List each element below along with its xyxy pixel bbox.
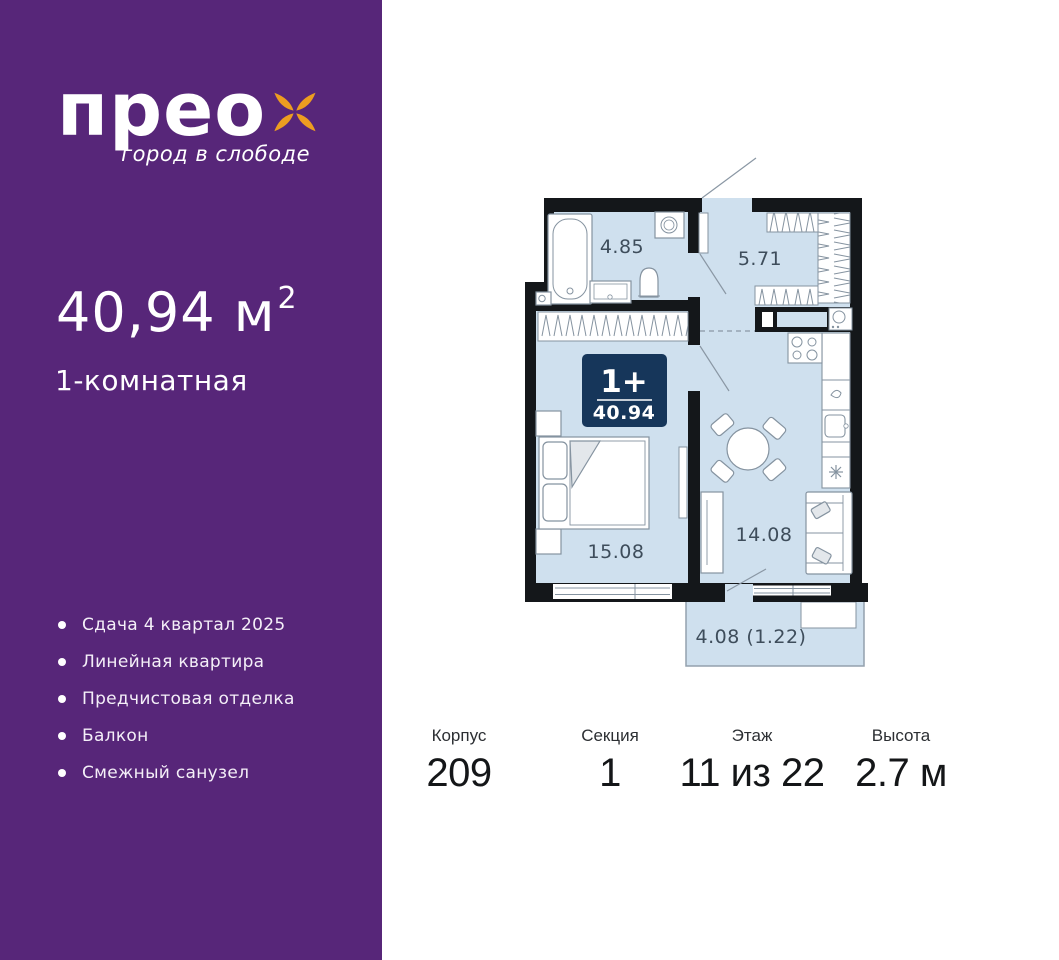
bullet-icon <box>58 695 66 703</box>
nightstand <box>536 529 561 554</box>
balcony-window <box>753 586 831 596</box>
bullet-icon <box>58 769 66 777</box>
bullet-icon <box>58 732 66 740</box>
bathroom-area-label: 4.85 <box>600 236 644 258</box>
feature-item: Балкон <box>58 727 295 744</box>
entrance-door-swing <box>702 158 756 198</box>
balcony-door-opening <box>725 584 753 602</box>
pillow <box>543 442 567 479</box>
toilet <box>640 268 658 297</box>
kitchen-sink <box>825 415 845 437</box>
fridge-snowflake-icon <box>829 465 843 479</box>
brand-flower-icon <box>273 80 317 144</box>
badge-rooms: 1+ <box>600 364 648 400</box>
balcony-area-label: 4.08 (1.22) <box>696 626 807 648</box>
sidebar: прео город в слободе 40,94 м2 1-комнатна… <box>0 0 382 960</box>
sofa <box>806 492 852 574</box>
bullet-icon <box>58 621 66 629</box>
tv-console <box>701 492 723 573</box>
feature-item: Смежный санузел <box>58 764 295 781</box>
dining-table <box>727 428 769 470</box>
kitchen-area-label: 14.08 <box>736 524 793 546</box>
bullet-icon <box>58 658 66 666</box>
pillow <box>543 484 567 521</box>
nightstand <box>536 411 561 436</box>
feature-list: Сдача 4 квартал 2025 Линейная квартира П… <box>58 616 295 801</box>
bedroom-console <box>679 447 687 518</box>
apartment-area: 40,94 м2 <box>56 281 296 344</box>
area-value: 40,94 <box>56 281 216 344</box>
bedroom-window <box>553 584 672 599</box>
detail-floor: Этаж 11 из 22 <box>680 726 825 796</box>
brand-name: прео <box>57 74 266 146</box>
area-unit: м <box>234 281 276 344</box>
stove <box>788 333 822 363</box>
feature-item: Линейная квартира <box>58 653 295 670</box>
apartment-badge: 1+ 40.94 <box>582 354 667 427</box>
floor-plan: 4.85 5.71 15.08 14.08 4.08 (1.22) 1+ 40.… <box>515 150 880 675</box>
hallway-area-label: 5.71 <box>738 248 782 270</box>
feature-item: Сдача 4 квартал 2025 <box>58 616 295 633</box>
apartment-card: прео город в слободе 40,94 м2 1-комнатна… <box>0 0 1059 960</box>
detail-section: Секция 1 <box>581 726 639 796</box>
entrance-door-leaf <box>699 213 708 253</box>
area-sup: 2 <box>278 281 298 316</box>
detail-height: Высота 2.7 м <box>855 726 947 796</box>
feature-item: Предчистовая отделка <box>58 690 295 707</box>
badge-area: 40.94 <box>593 402 656 424</box>
detail-building: Корпус 209 <box>426 726 491 796</box>
brand-logo: прео город в слободе <box>57 74 317 166</box>
apartment-type: 1-комнатная <box>55 364 248 397</box>
bedroom-area-label: 15.08 <box>588 541 645 563</box>
